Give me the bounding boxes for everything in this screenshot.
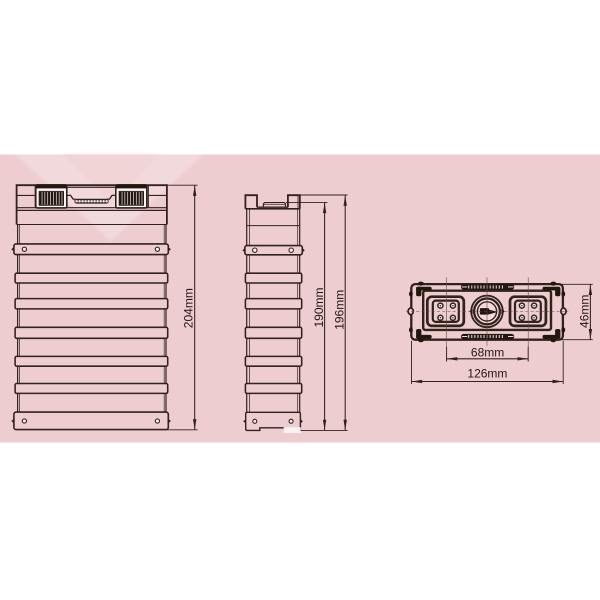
svg-text:46mm: 46mm — [578, 295, 592, 328]
svg-text:196mm: 196mm — [333, 290, 347, 330]
svg-text:68mm: 68mm — [471, 345, 504, 359]
svg-text:204mm: 204mm — [182, 288, 196, 328]
svg-text:126mm: 126mm — [467, 367, 507, 381]
svg-text:190mm: 190mm — [312, 287, 326, 327]
